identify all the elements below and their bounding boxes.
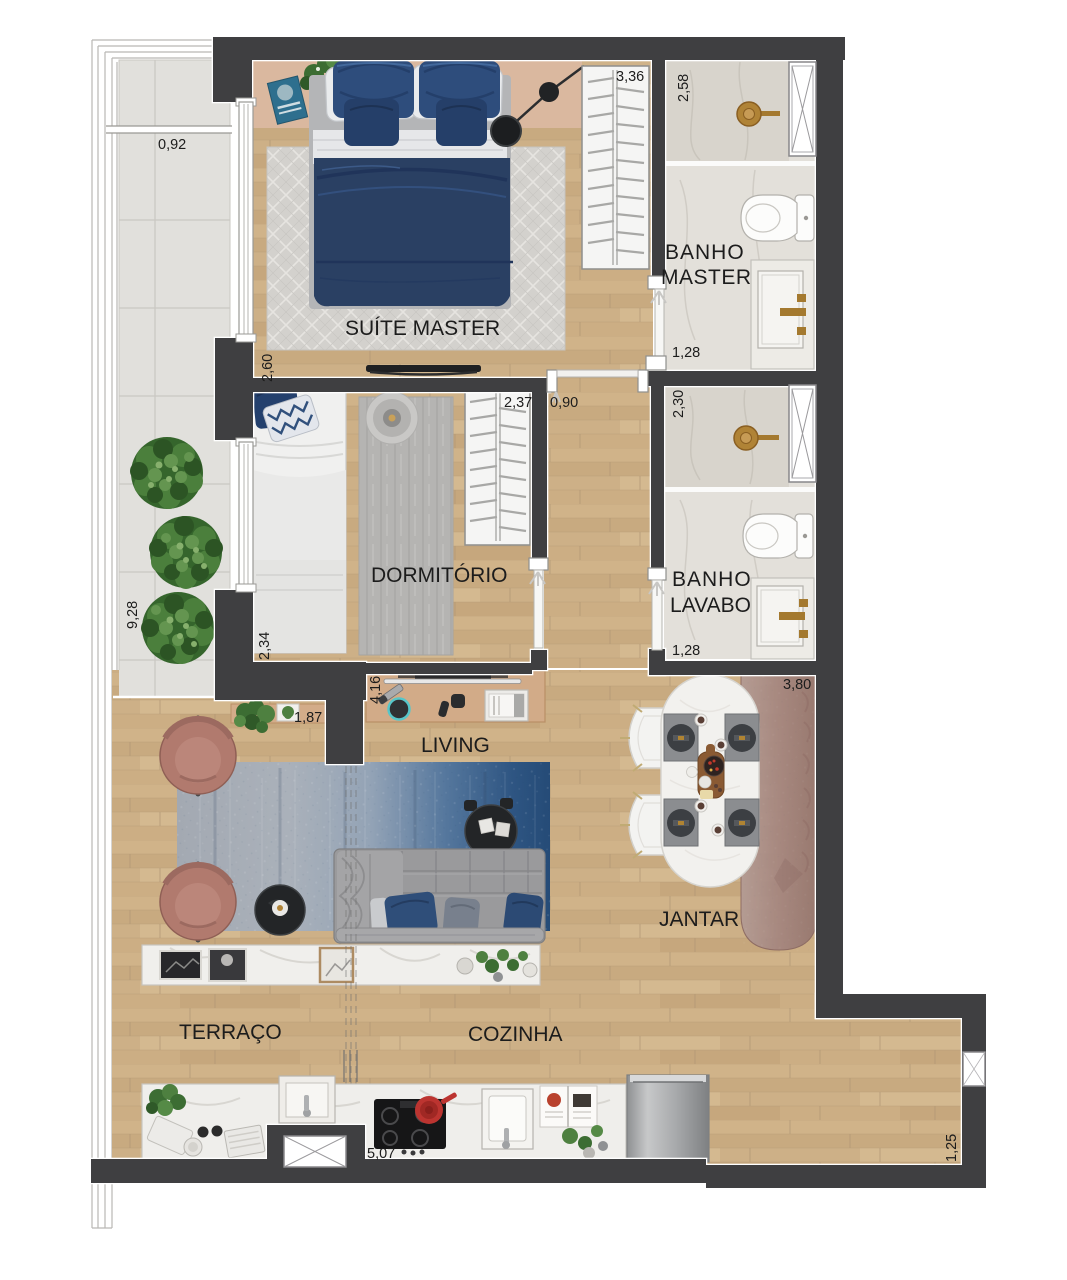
svg-text:2,58: 2,58	[676, 74, 692, 102]
svg-text:COZINHA: COZINHA	[468, 1023, 563, 1046]
svg-text:1,28: 1,28	[672, 345, 700, 361]
svg-text:4,16: 4,16	[368, 676, 384, 704]
svg-text:BANHO: BANHO	[665, 241, 745, 264]
svg-text:SUÍTE MASTER: SUÍTE MASTER	[345, 317, 500, 340]
svg-text:2,34: 2,34	[257, 632, 273, 660]
svg-text:2,60: 2,60	[260, 354, 276, 382]
svg-text:MASTER: MASTER	[661, 266, 752, 289]
svg-text:0,92: 0,92	[158, 137, 186, 153]
svg-text:3,36: 3,36	[616, 69, 644, 85]
svg-text:DORMITÓRIO: DORMITÓRIO	[371, 564, 508, 587]
svg-text:BANHO: BANHO	[672, 568, 752, 591]
svg-text:2,30: 2,30	[671, 390, 687, 418]
svg-text:1,87: 1,87	[294, 710, 322, 726]
svg-text:3,80: 3,80	[783, 677, 811, 693]
svg-text:0,90: 0,90	[550, 395, 578, 411]
svg-text:9,28: 9,28	[125, 601, 141, 629]
svg-text:TERRAÇO: TERRAÇO	[179, 1021, 282, 1044]
svg-text:1,25: 1,25	[944, 1134, 960, 1162]
svg-text:1,28: 1,28	[672, 643, 700, 659]
svg-text:5,07: 5,07	[367, 1146, 395, 1162]
svg-text:LIVING: LIVING	[421, 734, 490, 757]
svg-text:2,37: 2,37	[504, 395, 532, 411]
svg-text:JANTAR: JANTAR	[659, 908, 739, 931]
svg-text:LAVABO: LAVABO	[670, 594, 751, 617]
